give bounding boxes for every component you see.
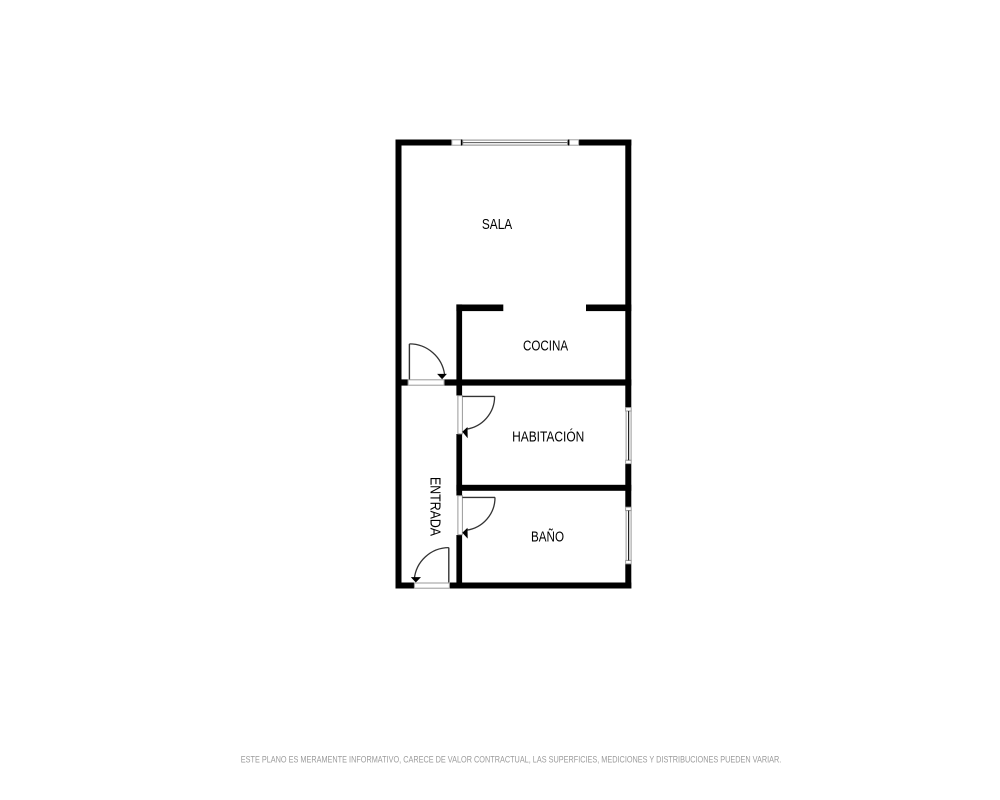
svg-text:COCINA: COCINA	[523, 338, 568, 355]
svg-text:HABITACIÓN: HABITACIÓN	[512, 429, 584, 446]
svg-text:ENTRADA: ENTRADA	[426, 477, 443, 536]
svg-text:ESTE PLANO ES MERAMENTE INFORM: ESTE PLANO ES MERAMENTE INFORMATIVO, CAR…	[241, 755, 782, 765]
svg-text:SALA: SALA	[482, 216, 512, 233]
svg-text:BAÑO: BAÑO	[531, 529, 564, 546]
